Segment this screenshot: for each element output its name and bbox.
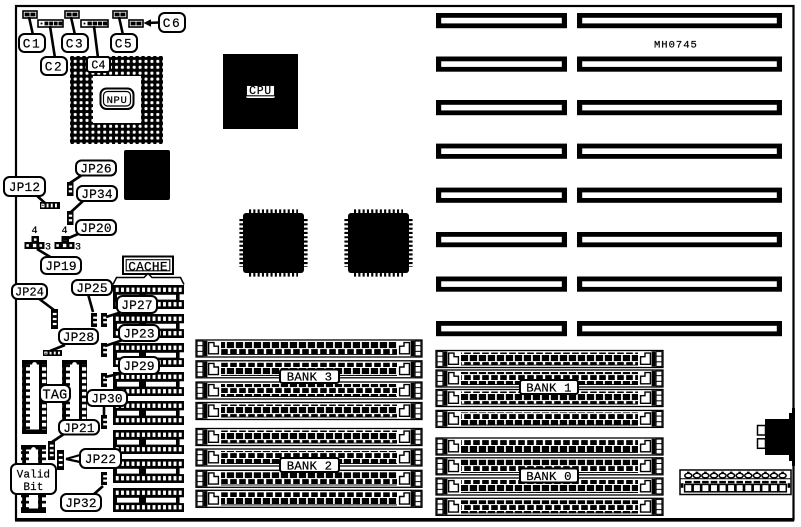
svg-text:JP27: JP27 (121, 298, 153, 313)
svg-text:JP25: JP25 (76, 281, 108, 296)
svg-text:C5: C5 (115, 37, 134, 52)
svg-text:JP26: JP26 (80, 162, 112, 177)
svg-text:JP28: JP28 (63, 330, 95, 345)
svg-text:BANK 0: BANK 0 (526, 470, 571, 484)
svg-text:Bit: Bit (23, 482, 43, 494)
svg-text:BANK 1: BANK 1 (526, 381, 571, 395)
svg-text:JP21: JP21 (63, 421, 95, 436)
svg-text:JP34: JP34 (81, 187, 113, 202)
svg-text:JP22: JP22 (85, 452, 117, 467)
svg-text:C4: C4 (91, 60, 105, 73)
svg-text:CPU: CPU (249, 85, 272, 98)
svg-text:MH0745: MH0745 (654, 40, 698, 52)
svg-text:CACHE: CACHE (128, 259, 168, 274)
svg-text:BANK 2: BANK 2 (287, 459, 332, 473)
svg-text:JP23: JP23 (123, 327, 155, 342)
svg-text:3: 3 (75, 243, 81, 254)
svg-text:JP19: JP19 (45, 259, 77, 274)
svg-text:Valid: Valid (17, 470, 50, 482)
svg-text:C3: C3 (66, 37, 85, 52)
svg-text:4: 4 (61, 226, 67, 237)
svg-text:3: 3 (45, 243, 51, 254)
svg-text:NPU: NPU (107, 95, 128, 107)
svg-text:TAG: TAG (43, 388, 68, 403)
svg-text:JP24: JP24 (15, 286, 44, 300)
svg-text:JP30: JP30 (91, 392, 123, 407)
svg-text:JP12: JP12 (9, 180, 41, 195)
svg-text:C6: C6 (163, 16, 182, 31)
svg-text:C2: C2 (45, 60, 64, 75)
svg-text:4: 4 (31, 226, 37, 237)
svg-text:C1: C1 (23, 37, 42, 52)
svg-text:BANK 3: BANK 3 (287, 371, 332, 385)
svg-text:JP20: JP20 (80, 221, 112, 236)
svg-text:JP32: JP32 (65, 496, 97, 511)
svg-text:JP29: JP29 (123, 359, 155, 374)
